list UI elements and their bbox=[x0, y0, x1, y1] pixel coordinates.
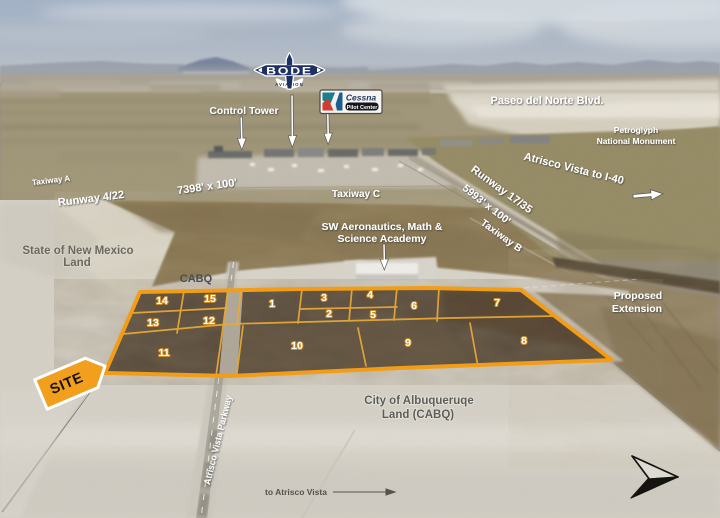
svg-text:Land (CABQ): Land (CABQ) bbox=[382, 409, 454, 421]
svg-text:15: 15 bbox=[204, 293, 216, 305]
svg-text:BODE: BODE bbox=[266, 65, 313, 77]
svg-text:Proposed: Proposed bbox=[614, 290, 662, 302]
svg-text:Cessna: Cessna bbox=[346, 93, 377, 103]
svg-text:National Monument: National Monument bbox=[597, 136, 676, 146]
svg-text:Taxiway C: Taxiway C bbox=[332, 189, 380, 200]
svg-text:Pilot Center: Pilot Center bbox=[347, 105, 379, 111]
svg-text:Control Tower: Control Tower bbox=[209, 106, 278, 117]
svg-text:AVIATION: AVIATION bbox=[275, 82, 304, 87]
svg-text:Science Academy: Science Academy bbox=[338, 233, 427, 245]
svg-text:State of New Mexico: State of New Mexico bbox=[22, 245, 133, 257]
svg-text:7: 7 bbox=[494, 297, 500, 309]
svg-text:Petroglyph: Petroglyph bbox=[614, 125, 658, 135]
svg-text:11: 11 bbox=[158, 347, 169, 359]
svg-text:6: 6 bbox=[411, 300, 417, 312]
svg-text:9: 9 bbox=[405, 337, 411, 349]
svg-text:CABQ: CABQ bbox=[180, 273, 213, 285]
svg-text:5: 5 bbox=[370, 309, 376, 321]
svg-text:10: 10 bbox=[291, 340, 303, 352]
svg-text:12: 12 bbox=[203, 315, 215, 327]
svg-text:14: 14 bbox=[156, 295, 168, 307]
svg-text:1: 1 bbox=[269, 298, 275, 310]
svg-text:8: 8 bbox=[521, 335, 527, 347]
svg-text:Paseo del Norte Blvd.: Paseo del Norte Blvd. bbox=[490, 95, 603, 107]
svg-text:to Atrisco Vista: to Atrisco Vista bbox=[265, 487, 327, 497]
svg-text:SW Aeronautics, Math &: SW Aeronautics, Math & bbox=[322, 221, 443, 233]
svg-text:3: 3 bbox=[321, 292, 327, 304]
svg-text:City of Albuqueruqe: City of Albuqueruqe bbox=[364, 395, 473, 407]
svg-text:4: 4 bbox=[367, 289, 373, 301]
svg-text:Extension: Extension bbox=[612, 303, 662, 315]
svg-text:Land: Land bbox=[63, 257, 90, 269]
svg-text:2: 2 bbox=[326, 308, 332, 320]
svg-text:13: 13 bbox=[147, 317, 159, 329]
